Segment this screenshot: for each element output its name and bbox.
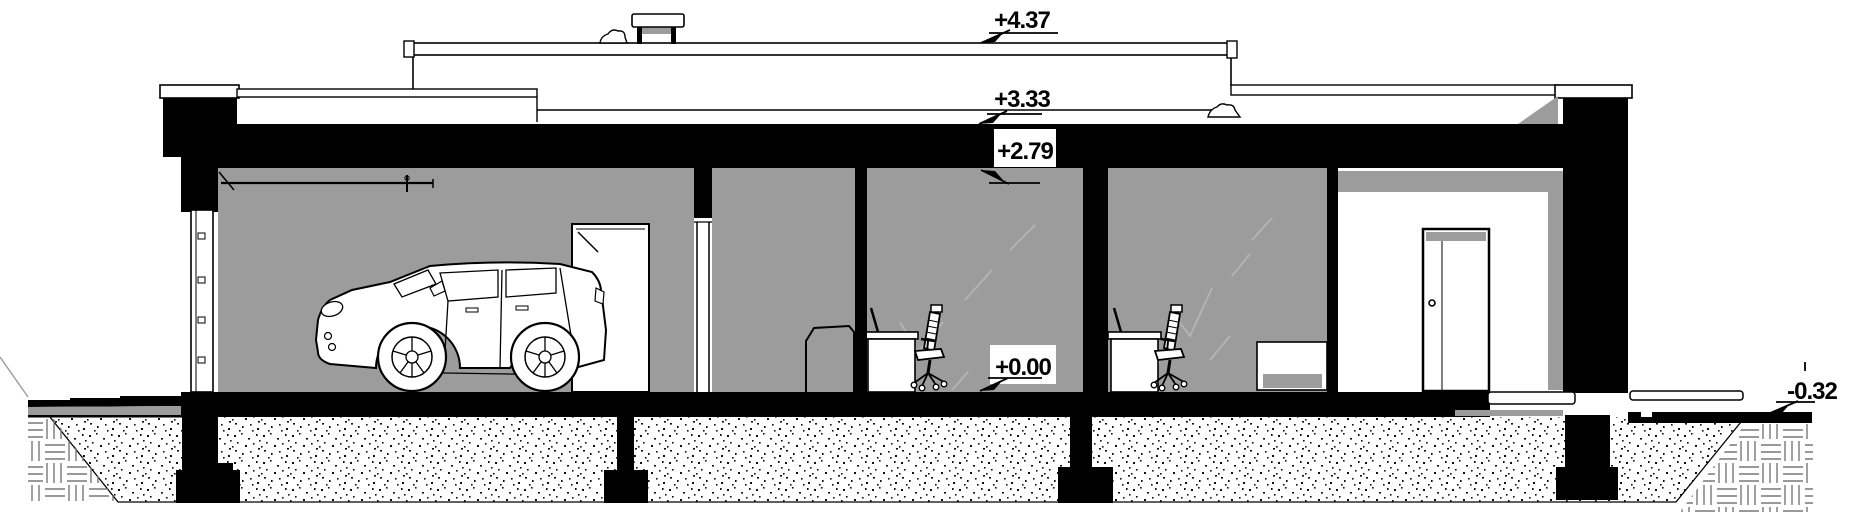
- door-knob: [1429, 300, 1435, 306]
- roof-shadow-wedge: [1518, 96, 1558, 124]
- level-marker-roof-high: +4.37: [981, 7, 1058, 43]
- partition-wall-garage: [694, 168, 712, 392]
- foundation-right-wall: [1556, 415, 1618, 500]
- garage-sectional-door: [191, 210, 213, 392]
- upper-roof-right-cap: [1227, 41, 1237, 58]
- roof-vent: [600, 30, 627, 43]
- level-label-roof-high: +4.37: [994, 7, 1050, 34]
- upper-roof-left-cap: [404, 41, 414, 57]
- car-rear-wheel: [511, 323, 579, 391]
- hall-ceiling-shadow: [1338, 171, 1563, 192]
- level-label-floor: +0.00: [995, 354, 1051, 381]
- car-front-wheel: [378, 323, 446, 391]
- level-marker-ground: -0.32: [1768, 362, 1838, 414]
- level-marker-roof-low: +3.33: [979, 86, 1051, 124]
- right-parapet-cap: [1555, 85, 1632, 98]
- partition-wall-4: [1327, 168, 1338, 392]
- lower-roof-left-band: [237, 89, 537, 97]
- architectural-section-drawing: +4.37 +3.33 +2.79 +0.00 -0.32: [0, 0, 1864, 521]
- upper-roof-slab: [408, 43, 1233, 55]
- level-label-roof-low: +3.33: [994, 86, 1050, 113]
- low-cabinet: [1257, 342, 1327, 390]
- driveway-ramp: [28, 396, 182, 418]
- partition-wall-2: [855, 168, 867, 392]
- partition-wall-3: [1083, 168, 1108, 392]
- hall-wall-shadow: [1548, 192, 1563, 390]
- terrain-lead-line: [0, 357, 28, 397]
- floor-slab: [181, 392, 1490, 417]
- hall-door: [1423, 229, 1489, 391]
- level-label-ceiling: +2.79: [997, 138, 1053, 165]
- chimney: [632, 14, 684, 44]
- storage-room: [712, 168, 855, 392]
- foundation-bed-stipple: [50, 417, 1745, 502]
- section-canvas: +4.37 +3.33 +2.79 +0.00 -0.32: [0, 0, 1864, 521]
- terrace-slab: [1630, 391, 1743, 400]
- level-label-ground: -0.32: [1787, 378, 1837, 405]
- exterior-ground-band: [1628, 412, 1812, 423]
- right-exterior-wall: [1563, 97, 1628, 393]
- threshold-slab: [1488, 392, 1575, 404]
- threshold-shadow: [1455, 410, 1563, 416]
- lower-roof-right-band: [1231, 85, 1558, 95]
- ceiling-slab: [181, 124, 1563, 168]
- left-parapet-cap: [160, 85, 239, 98]
- roof-step-vent: [1208, 104, 1240, 117]
